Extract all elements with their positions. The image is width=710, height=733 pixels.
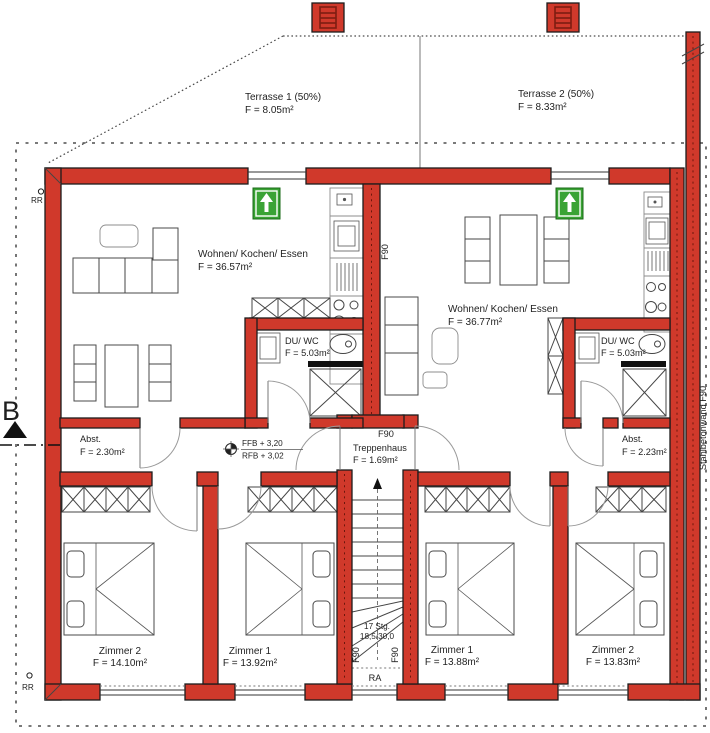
wke-right-area: F = 36.77m² [448,317,503,328]
zimmer1-right-area: F = 13.88m² [425,657,480,668]
stair-count: 17 Stg. [364,622,390,631]
zimmer2-left-area: F = 14.10m² [93,658,148,669]
escape-route-arrow-icon [556,188,583,219]
closet-left [252,298,330,318]
wardrobe [62,487,150,512]
wardrobe [596,487,666,512]
rainpipe-marker: RR [22,673,34,692]
wke-left-area: F = 36.57m² [198,262,253,273]
treppenhaus-area: F = 1.69m² [353,455,398,465]
kitchen-drawers [648,251,668,271]
armchair-right [432,328,458,364]
ra-label: RA [369,673,383,683]
kitchen-left [330,188,363,384]
stove-right [646,283,667,313]
zimmer1-left-area: F = 13.92m² [223,658,278,669]
terrasse2-name: Terrasse 2 (50%) [518,89,594,100]
bed [64,543,154,635]
zimmer2-right-area: F = 13.83m² [586,657,641,668]
abst-right-name: Abst. [622,434,643,444]
elevation-rfb: RFB + 3,02 [242,452,284,461]
zimmer2-left-name: Zimmer 2 [99,646,142,657]
roof-outline [48,36,686,168]
closet-right [548,318,563,394]
stair-dimensions: 18,5/30,0 [360,632,395,641]
f90-label: F90 [351,647,361,663]
elevation-ffb: FFB + 3,20 [242,439,283,448]
rr-label: RR [31,196,43,205]
stahlbetonwand-label: Stahlbetonwand F90 [698,386,708,470]
window [235,686,305,695]
sofa-right [385,297,418,395]
bed [246,543,334,635]
floor-plan: B FFB + 3,20 RFB + 3,02 RR RR Terrasse 1… [0,0,710,733]
window [352,686,397,695]
zimmer1-left-name: Zimmer 1 [229,646,272,657]
duwc-left-name: DU/ WC [285,336,319,346]
duwc-left-area: F = 5.03m² [285,348,330,358]
abst-left-area: F = 2.30m² [80,447,125,457]
wke-left-name: Wohnen/ Kochen/ Essen [198,249,308,260]
wke-right-name: Wohnen/ Kochen/ Essen [448,304,558,315]
window [100,686,185,695]
window [558,686,628,695]
treppenhaus-name: Treppenhaus [353,443,407,453]
f90-label: F90 [380,244,390,260]
window [445,686,508,695]
bed [576,543,664,635]
floor-plan-drawing: B FFB + 3,20 RFB + 3,02 RR RR Terrasse 1… [0,0,710,733]
terrace-door [248,172,306,179]
wardrobe [425,487,510,512]
kitchen-drawers [337,263,357,291]
terrasse1-area: F = 8.05m² [245,105,294,116]
section-label: B [2,396,20,426]
coffee-table-left [100,225,138,247]
duwc-right-name: DU/ WC [601,336,635,346]
terrace-door [551,172,609,179]
kitchen-right [644,192,670,332]
rr-label: RR [22,683,34,692]
zimmer2-right-name: Zimmer 2 [592,645,635,656]
side-table-right [423,372,447,388]
escape-route-arrow-icon [253,188,280,219]
chimney-icon [547,3,579,32]
bed [426,543,514,635]
f90-label: F90 [378,429,394,439]
stair-direction-arrow [373,478,382,489]
terrasse2-area: F = 8.33m² [518,102,567,113]
abst-left-name: Abst. [80,434,101,444]
chimney-icon [312,3,344,32]
dining-set-left [74,345,171,407]
terrasse1-name: Terrasse 1 (50%) [245,92,321,103]
abst-right-area: F = 2.23m² [622,447,667,457]
elevation-marker: FFB + 3,20 RFB + 3,02 [223,439,303,461]
duwc-right-area: F = 5.03m² [601,348,646,358]
dining-set-right [465,215,569,285]
wardrobe [248,487,337,512]
sofa-left [73,228,178,293]
f90-label: F90 [390,647,400,663]
rainpipe-marker: RR [31,189,44,205]
zimmer1-right-name: Zimmer 1 [431,645,474,656]
